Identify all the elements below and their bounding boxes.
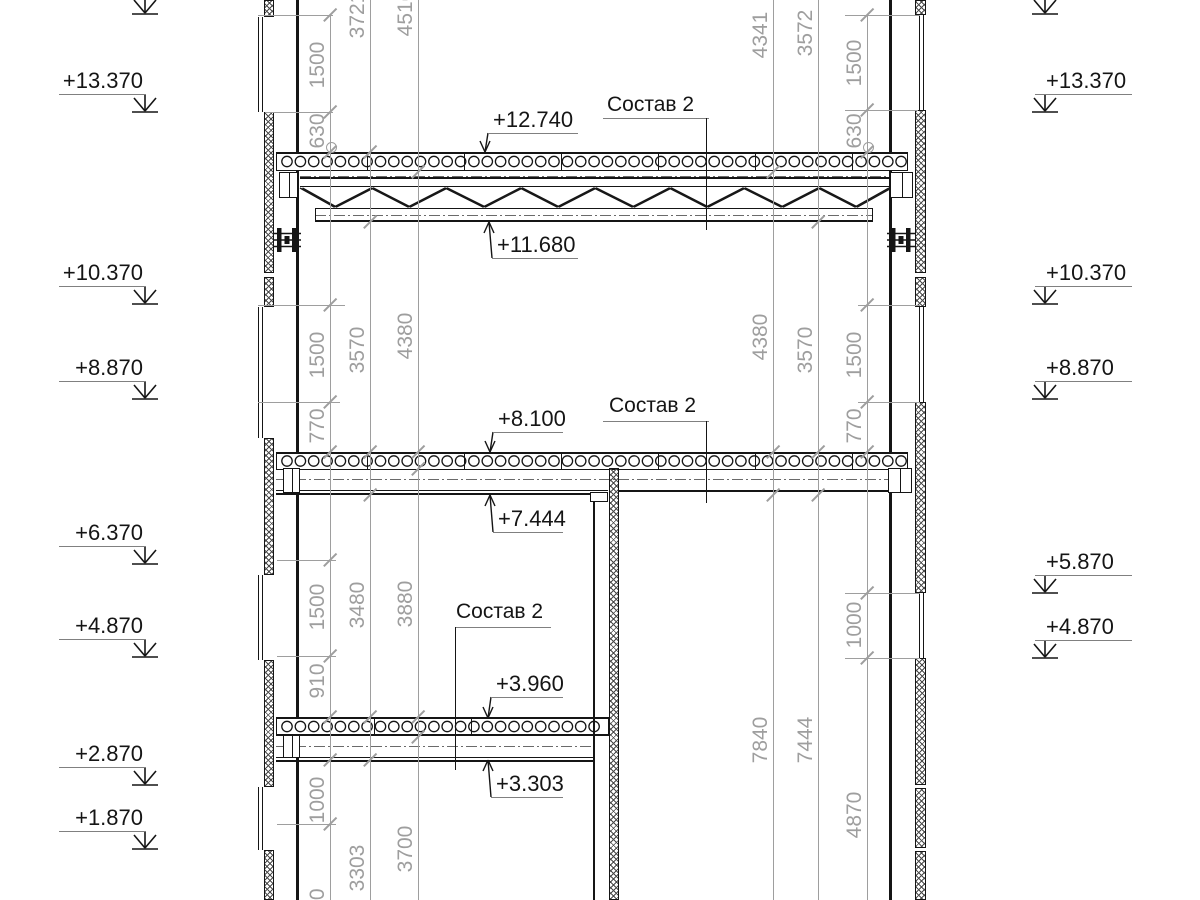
slab-edge-line [276,152,277,171]
elevation-mark-arrow [1034,644,1045,657]
left-wall-masonry-segment [264,850,275,900]
elevation-mark-label: +4.870 [1046,616,1136,638]
hollow-core-void-circle [309,456,319,466]
spot-elevation-underline [493,432,563,433]
hollow-core-void-circle [549,456,559,466]
right-wall-window-opening [923,593,924,658]
hollow-core-void-circle [829,156,839,166]
elevation-mark-arrow [1045,98,1056,111]
slab-bearing-box-divider [292,469,293,492]
hollow-core-void-circle [789,456,799,466]
extension-line [845,15,920,16]
hollow-core-void-circle [883,156,893,166]
elevation-mark-underline [59,831,146,832]
elevation-mark-underline [59,381,146,382]
left-wall-inner-face-line [296,734,299,900]
extension-line [845,658,920,659]
elevation-mark-arrow [1045,0,1056,13]
truss-top-chord [300,186,889,187]
hollow-core-void-circle [389,721,399,731]
dimension-text: 3700 [395,826,416,873]
dimension-text: 4380 [750,314,771,361]
spot-elevation-arrowhead [485,495,490,506]
hollow-core-void-circle [549,721,559,731]
hollow-core-void-circle [576,456,586,466]
hollow-core-void-circle [455,721,465,731]
dimension-text: 3570 [347,327,368,374]
spot-elevation-arrowhead [489,222,494,233]
hollow-core-void-circle [349,156,359,166]
elevation-mark-underline [59,639,146,640]
composition-label: Состав 2 [609,395,696,416]
left-wall-window-opening [262,787,263,850]
right-wall-window-opening [919,15,920,110]
hollow-core-void-circle [722,156,732,166]
hollow-core-void-circle [682,456,692,466]
elevation-mark-arrow [145,98,156,111]
elevation-mark-label: +13.370 [55,70,143,92]
slab-edge-line [276,452,277,471]
spot-elevation-arrow [485,133,488,152]
interior-wall-masonry-segment [609,468,619,900]
slab-panel-joint [561,454,562,469]
elevation-mark-arrow [1034,385,1045,398]
elevation-mark-underline [1035,640,1132,641]
hollow-core-void-circle [616,456,626,466]
slab-soffit-line [276,760,593,762]
extension-line [845,110,918,111]
hollow-core-void-circle [602,156,612,166]
right-wall-window-opening [919,593,920,658]
composition-label-leader-line [455,627,456,770]
hollow-core-void-circle [295,456,305,466]
elevation-mark-arrow [145,385,156,398]
left-wall-window-opening [258,787,259,850]
hollow-core-void-circle [642,156,652,166]
dimension-text: 1500 [844,40,865,87]
hollow-core-void-circle [869,156,879,166]
hollow-core-void-circle [642,456,652,466]
dimension-text: 1000 [844,602,865,649]
spot-elevation-arrow [488,697,491,718]
spot-elevation-arrowhead [480,141,485,152]
slab-panel-joint [658,454,659,469]
hollow-core-void-circle [789,156,799,166]
elevation-mark-arrow [145,290,156,303]
spot-elevation-arrowhead [485,441,490,452]
left-wall-window-opening [258,307,259,438]
dimension-text: 970 [307,888,328,900]
elevation-mark-arrow [134,98,145,111]
dimension-text: 4870 [844,792,865,839]
right-wall-inner-face-line [889,470,892,900]
hollow-core-void-circle [562,721,572,731]
spot-elevation-underline [488,133,578,134]
hollow-core-void-circle [803,156,813,166]
elevation-mark-arrow [1045,290,1056,303]
hollow-core-void-circle [562,456,572,466]
hollow-core-void-circle [682,156,692,166]
dimension-text: 1500 [307,42,328,89]
hollow-core-void-circle [736,456,746,466]
hollow-core-void-circle [522,721,532,731]
slab-centerline [276,479,890,480]
hollow-core-void-circle [282,456,292,466]
elevation-mark-arrow [1034,98,1045,111]
spot-elevation-label: +3.960 [496,673,564,695]
hollow-core-void-circle [536,156,546,166]
dimension-text: 4380 [395,313,416,360]
slab-panel-joint [471,719,472,734]
elevation-mark-underline [59,767,146,768]
right-wall-inner-face-line [889,170,892,452]
dimension-text: 1500 [307,332,328,379]
hollow-core-void-circle [282,721,292,731]
elevation-mark-arrow [1045,385,1056,398]
hollow-core-void-circle [669,456,679,466]
slab-band-bottom-line [276,734,609,736]
dimension-text: 3303 [347,845,368,892]
hollow-core-void-circle [389,456,399,466]
centerline [315,215,873,216]
hollow-core-void-circle [522,456,532,466]
elevation-mark-label: +13.370 [1046,70,1136,92]
composition-label: Состав 2 [607,94,694,115]
hollow-core-void-circle [402,156,412,166]
spot-elevation-arrow [490,495,493,532]
slab-centerline [276,746,593,747]
dimension-text: 1500 [307,584,328,631]
hollow-core-void-circle [442,456,452,466]
hollow-core-void-circle [335,721,345,731]
hollow-core-void-circle [442,721,452,731]
hollow-core-void-circle [495,721,505,731]
dimension-text: 7444 [795,717,816,764]
hollow-core-void-circle [722,456,732,466]
hollow-core-void-circle [549,156,559,166]
slab-soffit-line [276,490,608,491]
dimension-text: 630 [844,113,865,148]
elevation-mark-underline [1035,381,1132,382]
dimension-text: 3572 [795,10,816,57]
elevation-mark-label: +8.870 [1046,357,1136,379]
spot-elevation-arrowhead [488,760,493,771]
hollow-core-void-circle [335,156,345,166]
left-wall-window-opening [258,575,259,660]
left-wall-window-opening [258,17,259,112]
hollow-core-void-circle [469,156,479,166]
right-wall-masonry-segment [915,851,926,900]
right-wall-masonry-segment [915,788,926,848]
interior-wall-inner-face-line [593,497,595,900]
elevation-mark-underline [59,286,146,287]
extension-line [845,593,920,594]
hollow-core-void-circle [469,456,479,466]
hollow-core-void-circle [669,156,679,166]
dimension-text: 910 [307,663,328,698]
hollow-core-void-circle [829,456,839,466]
extension-line [265,112,333,113]
dimension-text: 630 [307,113,328,148]
right-wall-window-opening [923,307,924,402]
dimension-text: 7840 [750,717,771,764]
elevation-mark-underline [59,94,146,95]
hollow-core-void-circle [282,156,292,166]
spot-elevation-label: +7.444 [498,508,566,530]
hollow-core-void-circle [495,456,505,466]
elevation-mark-label: +1.870 [55,807,143,829]
elevation-mark-arrow [134,835,145,848]
spot-elevation-arrowhead [483,760,488,771]
left-wall-window-opening [262,17,263,112]
spot-elevation-label: +8.100 [498,408,566,430]
hollow-core-void-circle [896,156,906,166]
hollow-core-void-circle [629,156,639,166]
slab-bearing-box-divider [900,469,901,492]
right-wall-masonry-segment [915,0,926,15]
hollow-core-void-circle [576,156,586,166]
spot-elevation-underline [493,532,563,533]
hollow-core-void-circle [696,456,706,466]
hollow-core-void-circle [495,156,505,166]
slab-panel-joint [367,454,368,469]
hollow-core-void-circle [295,156,305,166]
hollow-core-void-circle [589,456,599,466]
hollow-core-void-circle [896,456,906,466]
elevation-mark-label: +10.370 [1046,262,1136,284]
hollow-core-void-circle [629,456,639,466]
right-wall-masonry-segment [915,658,926,785]
right-wall-window-opening [919,307,920,402]
elevation-mark-arrow [134,550,145,563]
truss-bottom-chord [315,220,873,223]
slab-bearing-box-divider [289,173,290,197]
spot-elevation-underline [491,797,563,798]
elevation-mark-arrow [145,643,156,656]
spot-elevation-underline [492,258,578,259]
technical-drawing-canvas: 1500630150077015009101000970372135703480… [0,0,1200,900]
elevation-mark-arrow [1034,290,1045,303]
elevation-mark-arrow [134,643,145,656]
truss-web-diagonals [303,188,892,207]
hollow-core-void-circle [429,721,439,731]
slab-panel-joint [852,154,853,170]
spot-elevation-arrowhead [490,495,495,506]
dimension-text: 770 [844,408,865,443]
composition-label-underline [455,627,551,628]
elevation-mark-label: +5.870 [1046,551,1136,573]
hollow-core-void-circle [883,456,893,466]
composition-label-underline [603,118,709,119]
hollow-core-void-circle [442,156,452,166]
dimension-text: 4341 [750,12,771,59]
slab-panel-joint [755,154,756,170]
left-wall-inner-face-line [296,470,299,717]
elevation-mark-label: +8.870 [55,357,143,379]
left-wall-window-opening [262,307,263,438]
spot-elevation-label: +12.740 [493,109,573,131]
slab-edge-line [907,152,908,171]
slab-panel-joint [374,719,375,734]
hollow-core-void-circle [589,156,599,166]
slab-soffit-line [618,490,890,492]
extension-line [258,15,333,16]
spot-elevation-arrowhead [485,141,490,152]
right-wall-masonry-segment [915,277,926,307]
hollow-core-void-circle [776,456,786,466]
elevation-mark-label: +4.870 [55,615,143,637]
elevation-mark-underline [1035,94,1132,95]
elevation-mark-underline [59,546,146,547]
dimension-text: 770 [307,408,328,443]
hollow-core-void-circle [482,456,492,466]
spot-elevation-arrow [490,432,493,452]
elevation-mark-underline [1035,575,1132,576]
hollow-core-void-circle [576,721,586,731]
left-wall-inner-face-line [296,170,299,452]
hollow-core-void-circle [509,721,519,731]
slab-panel-joint [464,154,465,170]
anchor-bracket-icon [906,228,911,252]
composition-label-leader-line [706,421,707,503]
datum-circle [863,142,874,153]
slab-bearing-box-divider [292,736,293,757]
slab-and-truss-vector-layer [0,0,1200,900]
elevation-mark-arrow [145,835,156,848]
hollow-core-void-circle [375,721,385,731]
spot-elevation-underline [491,697,563,698]
hollow-core-void-circle [375,156,385,166]
datum-circle [326,142,337,153]
hollow-core-void-circle [522,156,532,166]
truss-bottom-chord [315,208,873,209]
elevation-mark-arrow [1045,579,1056,592]
dimension-text: 4516 [395,0,416,36]
truss-top-chord [300,177,889,179]
elevation-mark-arrow [134,0,145,13]
elevation-mark-arrow [145,0,156,13]
interior-wall-corbel [590,492,608,502]
dimension-text: 3880 [395,581,416,628]
hollow-core-void-circle [736,156,746,166]
slab-panel-joint [658,154,659,170]
left-wall-masonry-segment [264,660,275,787]
spot-elevation-label: +3.303 [496,773,564,795]
spot-elevation-arrow [488,760,491,797]
slab-panel-joint [367,154,368,170]
hollow-core-void-circle [696,156,706,166]
slab-edge-line [276,717,277,736]
slab-panel-joint [561,154,562,170]
elevation-mark-arrow [145,771,156,784]
slab-panel-joint [464,454,465,469]
composition-label-leader-line [706,118,707,230]
left-wall-inner-face-line [296,0,299,152]
hollow-core-void-circle [562,156,572,166]
hollow-core-void-circle [429,156,439,166]
elevation-mark-arrow [134,290,145,303]
hollow-core-void-circle [349,456,359,466]
hollow-core-void-circle [602,456,612,466]
hollow-core-void-circle [389,156,399,166]
hollow-core-void-circle [509,156,519,166]
hollow-core-void-circle [309,156,319,166]
elevation-mark-arrow [1045,644,1056,657]
hollow-core-void-circle [335,456,345,466]
spot-elevation-arrow [489,222,492,258]
left-wall-masonry-segment [264,438,275,575]
hollow-core-void-circle [509,456,519,466]
elevation-mark-arrow [134,385,145,398]
slab-soffit-line [276,757,593,758]
left-wall-masonry-segment [264,277,275,307]
right-wall-masonry-segment [915,110,926,273]
composition-label: Состав 2 [456,601,543,622]
hollow-core-void-circle [482,721,492,731]
right-wall-inner-face-line [889,0,892,152]
dimension-text: 3570 [795,327,816,374]
hollow-core-void-circle [375,456,385,466]
right-wall-masonry-segment [915,402,926,593]
hollow-core-void-circle [309,721,319,731]
hollow-core-void-circle [709,156,719,166]
right-wall-window-opening [923,15,924,110]
elevation-mark-arrow [134,771,145,784]
anchor-bracket-icon [891,228,896,252]
anchor-bracket-icon [285,236,290,244]
elevation-mark-arrow [1034,579,1045,592]
extension-line [258,305,345,306]
elevation-mark-arrow [145,550,156,563]
truss-web-diagonals [300,188,889,207]
dimension-text: 3480 [347,582,368,629]
anchor-bracket-icon [277,228,282,252]
slab-panel-joint [755,454,756,469]
spot-elevation-arrowhead [484,222,489,233]
hollow-core-void-circle [295,721,305,731]
spot-elevation-label: +11.680 [497,234,576,256]
left-wall-window-opening [262,575,263,660]
hollow-core-void-circle [536,721,546,731]
dimension-text: 1500 [844,332,865,379]
elevation-mark-label: +10.370 [55,262,143,284]
elevation-mark-label: +2.870 [55,743,143,765]
spot-elevation-arrowhead [490,441,495,452]
hollow-core-void-circle [429,456,439,466]
elevation-mark-underline [1035,286,1132,287]
annotation-arrow-layer [0,0,1200,900]
hollow-core-void-circle [709,456,719,466]
hollow-core-void-circle [616,156,626,166]
left-wall-masonry-segment [264,112,275,273]
slab-bearing-box-divider [902,173,903,197]
hollow-core-void-circle [869,456,879,466]
truss-chord-end-cap [315,208,316,222]
composition-label-underline [603,421,709,422]
slab-panel-joint [852,454,853,469]
dimension-text: 1000 [307,777,328,824]
hollow-core-void-circle [482,156,492,166]
elevation-mark-label: +6.370 [55,522,143,544]
elevation-mark-arrow [1034,0,1045,13]
hollow-core-void-circle [762,156,772,166]
dimension-text: 3721 [347,0,368,38]
anchor-bracket-icon [899,236,904,244]
truss-chord-end-cap [872,208,873,222]
hollow-core-void-circle [349,721,359,731]
slab-soffit-line [276,493,608,495]
hollow-core-void-circle [536,456,546,466]
